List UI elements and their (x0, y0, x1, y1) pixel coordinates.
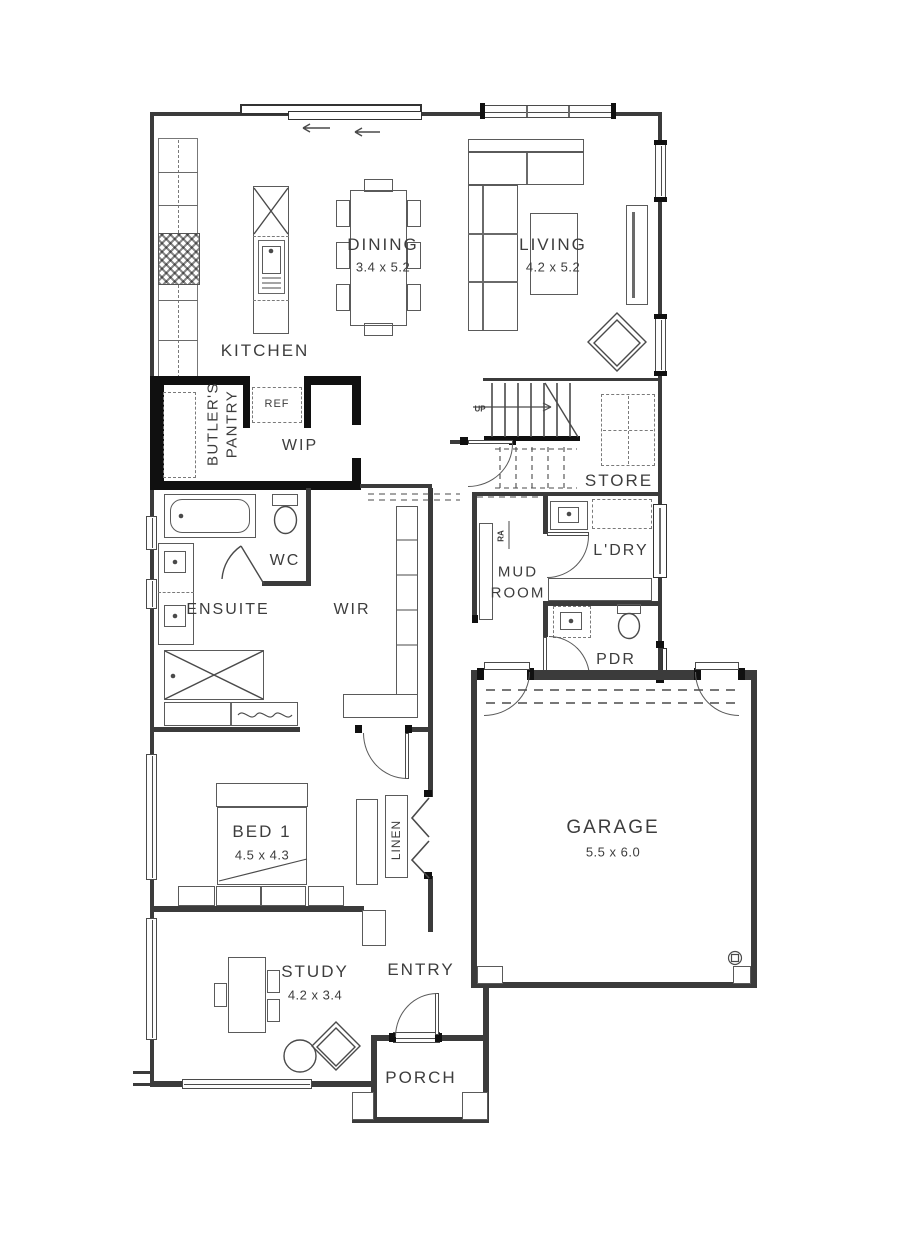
island-dash (253, 236, 289, 237)
wall-wc-right (306, 488, 311, 586)
dining-chair (364, 323, 393, 336)
door-jamb (424, 872, 432, 879)
window-bed1 (146, 754, 157, 880)
room-label-study: STUDY (281, 962, 349, 982)
garage-wall-right (751, 680, 757, 988)
wall-bed-top-a (150, 727, 300, 732)
sliding-door-arrows (303, 124, 380, 136)
window-jamb (480, 103, 485, 119)
room-dims-living: 4.2 x 5.2 (526, 260, 580, 275)
garage-wall-bottom (471, 982, 757, 988)
island-sink-bowl (262, 246, 281, 274)
sofa-seats-left (468, 185, 518, 331)
bed-headboard (216, 783, 308, 807)
window-study-bottom (182, 1079, 312, 1089)
room-dims-bed1: 4.5 x 4.3 (235, 848, 289, 863)
stair-wall-top (483, 378, 658, 381)
sofa-cushion-line (468, 281, 518, 283)
stair-treads (492, 383, 570, 437)
room-label-butlers-pantry-1: BUTLER'S (205, 382, 222, 466)
garage-meter-box (729, 952, 742, 965)
vanity-basin (164, 605, 186, 627)
dining-table (350, 190, 407, 326)
wc-cistern (272, 494, 298, 506)
room-label-kitchen: KITCHEN (221, 341, 310, 361)
ref-nook-left (243, 376, 250, 428)
wall-step-left-a (133, 1071, 152, 1074)
linen-bifold-doors (412, 798, 429, 878)
entry-door-arc (395, 993, 437, 1037)
shower (164, 650, 264, 700)
garage-pier-right (733, 966, 751, 984)
pdr-cistern (617, 604, 641, 614)
dining-chair (336, 284, 350, 311)
pantry-wall-top-a (150, 376, 246, 385)
door-jamb (355, 725, 362, 733)
room-label-bed1: BED 1 (232, 822, 291, 842)
label-ra: RA (497, 530, 506, 542)
wall-mud-west (472, 492, 477, 620)
wall-hall-west (428, 488, 433, 732)
label-ref: REF (265, 398, 290, 410)
window-jamb (654, 371, 667, 376)
room-label-living: LIVING (519, 235, 587, 255)
room-label-pdr: PDR (596, 651, 636, 669)
window-ensuite-2 (146, 579, 157, 609)
room-label-butlers-pantry-2: PANTRY (224, 390, 241, 458)
sliding-door-panel-inner (288, 111, 422, 120)
room-label-wir: WIR (333, 601, 370, 619)
pdr-toilet (619, 614, 640, 639)
wall-mud-top (477, 492, 662, 496)
study-chair (267, 999, 280, 1022)
wall-bed-east-b (428, 876, 433, 910)
window-study-left (146, 918, 157, 1040)
island-dash (253, 300, 289, 301)
mud-bench (548, 578, 652, 601)
room-label-dining: DINING (347, 235, 419, 255)
garage-door-left-arc (484, 672, 530, 716)
bed (217, 807, 307, 885)
cabinet-divider (158, 340, 198, 341)
room-label-mud-room-1: MUD (498, 564, 538, 581)
window-jamb (611, 103, 616, 119)
mudroom-lockers (479, 523, 493, 620)
sofa-back-line (482, 186, 484, 330)
bed-dresser (356, 799, 378, 885)
sofa-back-top (468, 139, 584, 152)
room-label-laundry: L'DRY (593, 542, 648, 560)
wir-shelf-bottom (343, 694, 418, 718)
door-jamb (656, 641, 664, 648)
bed-end-ottoman (178, 886, 215, 906)
dining-chair (407, 284, 421, 311)
study-round-chair (284, 1040, 316, 1072)
wip-wall-right-a (352, 376, 361, 425)
room-dims-dining: 3.4 x 5.2 (356, 260, 410, 275)
wc-toilet (275, 507, 297, 534)
wall-pdr-left (543, 601, 548, 637)
wall-bed-study (150, 906, 364, 912)
window-ensuite-1 (146, 516, 157, 550)
wall-mud-ldry (543, 492, 548, 534)
store-shelf-line (628, 396, 629, 464)
room-label-garage: GARAGE (566, 817, 659, 839)
door-jamb (460, 437, 468, 445)
room-label-wip: WIP (282, 437, 318, 455)
pantry-wall-left (150, 376, 164, 490)
laundry-trough-bowl (558, 507, 579, 523)
sofa-cushion-line (468, 233, 518, 235)
wall-entry-stub (428, 906, 433, 932)
garage-door-left-leaf (484, 662, 530, 670)
study-chair (267, 970, 280, 993)
wall-wir-top (360, 484, 432, 488)
tv-screen (632, 212, 635, 298)
cabinet-divider (158, 172, 198, 173)
plan-linework (0, 0, 900, 1245)
garage-wall-left (471, 680, 477, 988)
cabinet-divider (158, 300, 198, 301)
stair-break-line (545, 383, 578, 437)
room-label-ensuite: ENSUITE (186, 601, 269, 619)
vanity-basin (164, 551, 186, 573)
room-label-store: STORE (585, 471, 653, 491)
window-jamb (654, 140, 667, 145)
label-up: UP (474, 405, 485, 414)
room-label-wc: WC (270, 552, 301, 570)
sofa-cushion-line (526, 153, 528, 184)
window-living-top (483, 105, 613, 118)
cabinet-divider (158, 205, 198, 206)
garage-door-right-leaf (695, 662, 739, 670)
garage-pier-left (477, 966, 503, 984)
bed-end-bench (216, 886, 261, 906)
store-door-arc (468, 444, 513, 487)
garage-wall-top-b (530, 670, 697, 680)
living-diamond-table (588, 313, 646, 371)
bath-tub (170, 499, 250, 533)
dining-chair (407, 200, 421, 227)
wall-entry-front-b (438, 1035, 489, 1041)
room-label-porch: PORCH (385, 1068, 456, 1088)
door-jamb (738, 668, 745, 680)
wir-shelf-right (396, 506, 418, 698)
room-dims-garage: 5.5 x 6.0 (586, 845, 640, 860)
porch-post (462, 1092, 488, 1120)
study-diamond-table (312, 1022, 360, 1070)
laundry-bench (592, 499, 652, 529)
door-jamb (405, 725, 412, 733)
room-label-mud-room-2: ROOM (491, 585, 546, 602)
room-label-linen: LINEN (389, 820, 403, 860)
door-jamb (472, 615, 478, 623)
window-living-right-2 (655, 318, 666, 372)
window-jamb (654, 197, 667, 202)
bed-end-ottoman (308, 886, 344, 906)
bed-end-bench (261, 886, 306, 906)
dining-chair (336, 200, 350, 227)
door-jamb (424, 790, 432, 797)
pantry-hatched-unit (158, 233, 200, 285)
porch-post (352, 1092, 374, 1120)
pantry-shelving (163, 392, 196, 478)
dining-chair (364, 179, 393, 192)
window-jamb (654, 314, 667, 319)
door-jamb (477, 668, 484, 680)
tv-unit (626, 205, 648, 305)
vanity-dash (158, 592, 194, 593)
bench-divider (230, 703, 232, 725)
garage-door-right-arc (695, 672, 739, 716)
bed1-door-arc (363, 733, 407, 779)
wall-bed-east-a (428, 732, 433, 797)
floor-plan: KITCHEN DINING 3.4 x 5.2 LIVING 4.2 x 5.… (0, 0, 900, 1245)
laundry-door-arc (547, 536, 589, 578)
room-label-entry: ENTRY (387, 960, 454, 980)
study-chair (214, 983, 227, 1007)
entry-cabinet (362, 910, 386, 946)
study-desk (228, 957, 266, 1033)
window-mullion (526, 106, 528, 117)
room-dims-study: 4.2 x 3.4 (288, 988, 342, 1003)
window-living-right-1 (655, 144, 666, 198)
pdr-basin (560, 612, 582, 630)
wc-door (222, 546, 264, 584)
wall-wc-bottom (262, 581, 311, 586)
laundry-door-line (659, 508, 661, 574)
pantry-wall-bottom (150, 481, 361, 490)
window-mullion (568, 106, 570, 117)
